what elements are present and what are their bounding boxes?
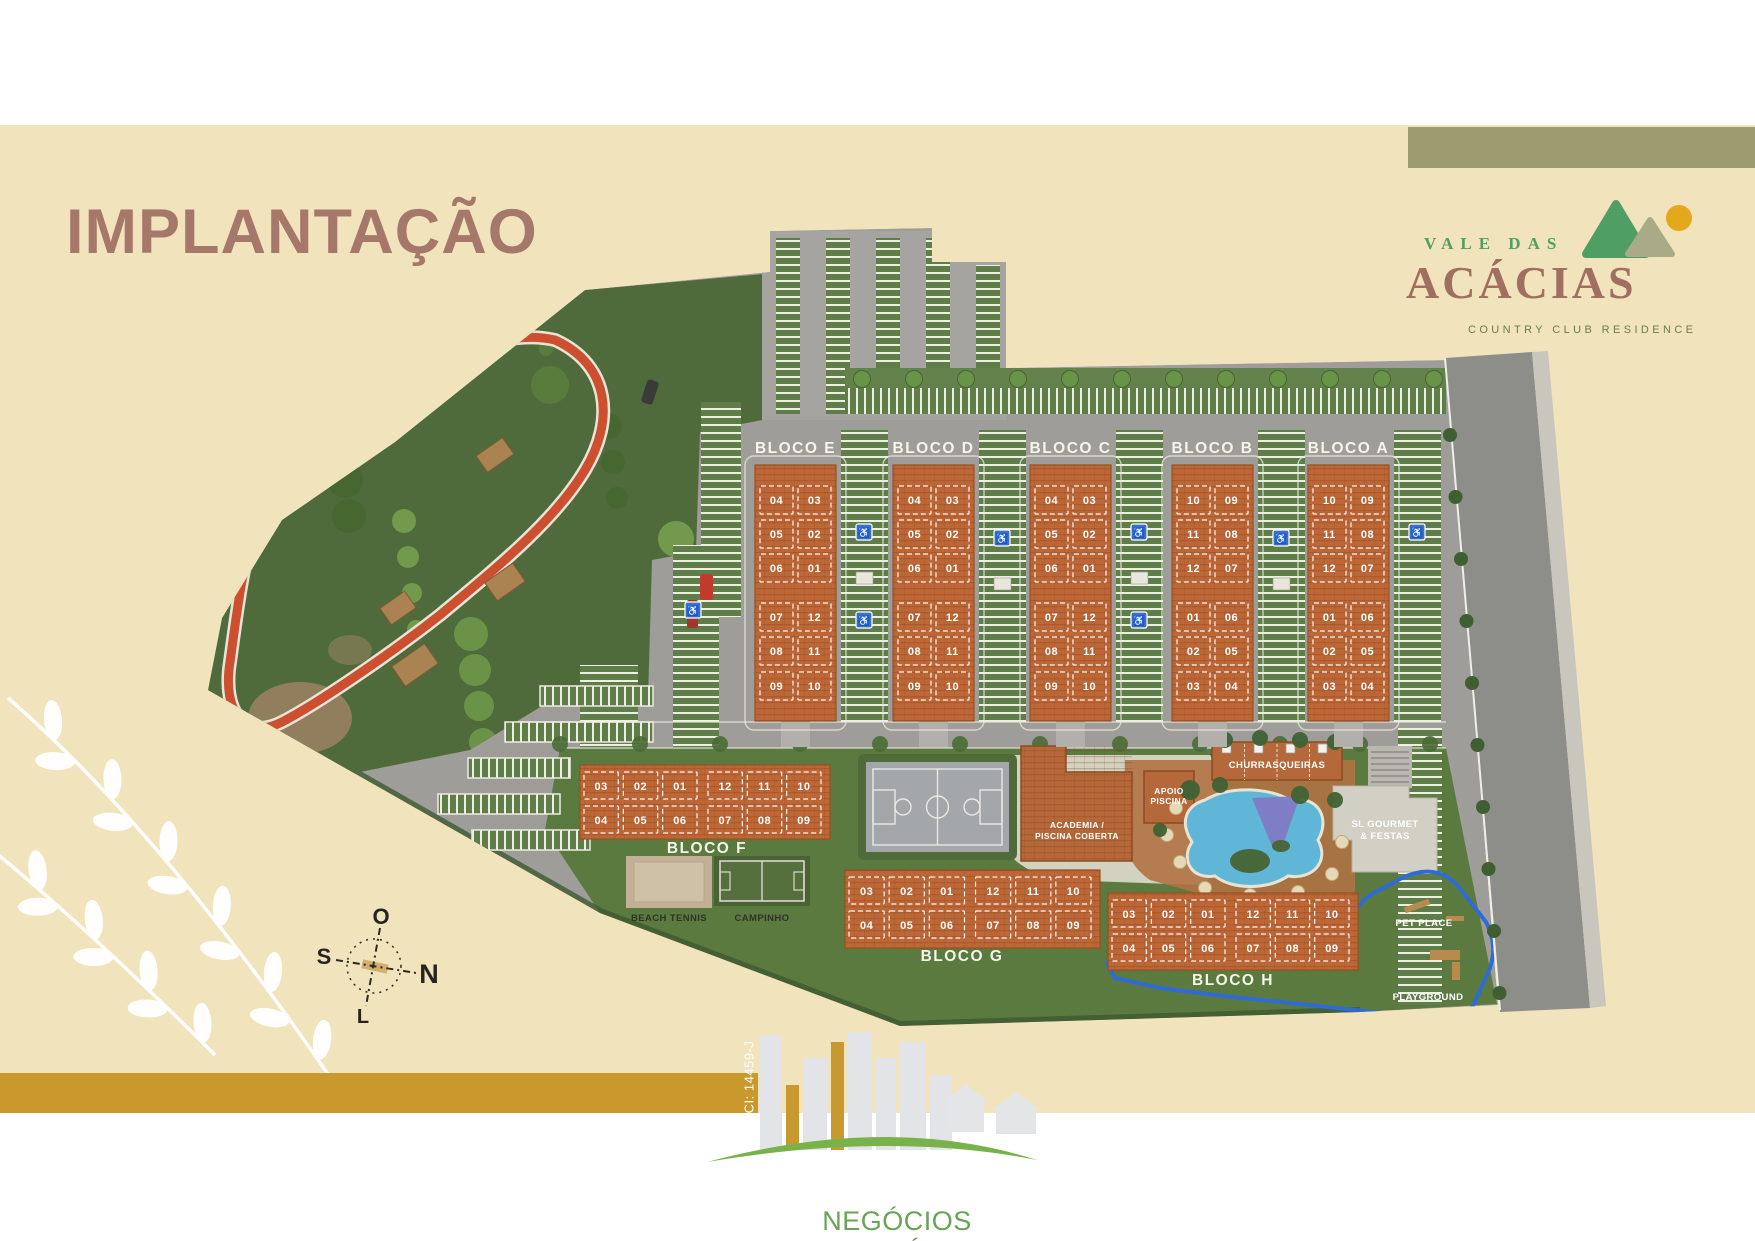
unit-number: 11 <box>1027 886 1040 898</box>
unit-number: 12 <box>1187 563 1200 575</box>
unit-number: 08 <box>908 646 921 658</box>
gym-label: ACADEMIA / <box>1050 820 1104 830</box>
unit-number: 05 <box>1045 529 1058 541</box>
unit-number: 01 <box>1323 612 1336 624</box>
gym-roof-texture <box>1021 746 1132 861</box>
unit-number: 04 <box>1123 943 1137 955</box>
unit-number: 05 <box>770 529 783 541</box>
unit-number: 10 <box>1323 495 1336 507</box>
unit-number: 09 <box>797 815 810 827</box>
unit-number: 03 <box>595 781 608 793</box>
block-C: BLOCO C040305020601071208110910 <box>1020 440 1121 747</box>
unit-number: 03 <box>1323 681 1336 693</box>
page-title: IMPLANTAÇÃO <box>66 196 538 268</box>
unit-number: 01 <box>940 886 953 898</box>
unit-number: 02 <box>946 529 959 541</box>
block-D: BLOCO D040305020601071208110910 <box>883 440 984 747</box>
registration-number: CI: 14459-J <box>742 1041 757 1114</box>
brand-name-top: VALE DAS <box>1424 234 1563 254</box>
svg-text:♿: ♿ <box>1133 614 1145 627</box>
block-label: BLOCO F <box>667 840 747 857</box>
unit-number: 04 <box>1045 495 1059 507</box>
svg-text:♿: ♿ <box>858 526 870 539</box>
unit-number: 08 <box>1361 529 1374 541</box>
unit-number: 04 <box>1361 681 1375 693</box>
slide: ♿♿♿♿♿♿♿♿ <box>0 0 1755 1241</box>
unit-number: 08 <box>1045 646 1058 658</box>
svg-text:♿: ♿ <box>687 604 699 617</box>
unit-number: 08 <box>770 646 783 658</box>
block-E: BLOCO E040305020601071208110910 <box>745 440 846 747</box>
unit-number: 03 <box>946 495 959 507</box>
unit-number: 07 <box>1045 612 1058 624</box>
unit-number: 01 <box>673 781 686 793</box>
parking-north-band <box>845 368 1446 414</box>
pool-island <box>1272 840 1290 852</box>
unit-number: 05 <box>1361 646 1374 658</box>
unit-number: 05 <box>900 920 913 932</box>
unit-number: 11 <box>1323 529 1336 541</box>
block-label: BLOCO G <box>921 948 1004 965</box>
unit-number: 08 <box>1027 920 1040 932</box>
unit-number: 04 <box>1225 681 1239 693</box>
unit-number: 07 <box>986 920 999 932</box>
svg-text:♿: ♿ <box>1411 526 1423 539</box>
unit-number: 02 <box>1083 529 1096 541</box>
bbq-label: CHURRASQUEIRAS <box>1229 760 1325 771</box>
unit-number: 05 <box>1225 646 1238 658</box>
svg-text:♿: ♿ <box>1133 526 1145 539</box>
unit-number: 12 <box>808 612 821 624</box>
unit-number: 08 <box>1286 943 1299 955</box>
unit-number: 06 <box>908 563 921 575</box>
block-label: BLOCO E <box>755 440 836 457</box>
unit-number: 12 <box>946 612 959 624</box>
unit-number: 06 <box>1201 943 1214 955</box>
unit-number: 02 <box>634 781 647 793</box>
gourmet-label: SL GOURMET <box>1351 819 1418 830</box>
compass-rose: O S N L <box>317 904 439 1028</box>
unit-number: 03 <box>1123 909 1136 921</box>
unit-number: 06 <box>1045 563 1058 575</box>
unit-number: 07 <box>770 612 783 624</box>
unit-number: 01 <box>808 563 821 575</box>
compass-south: S <box>317 944 332 969</box>
unit-number: 11 <box>1083 646 1096 658</box>
unit-number: 10 <box>808 681 821 693</box>
unit-number: 12 <box>1323 563 1336 575</box>
svg-text:♿: ♿ <box>996 532 1008 545</box>
unit-number: 12 <box>986 886 999 898</box>
unit-number: 02 <box>1162 909 1175 921</box>
pool-island <box>1230 849 1270 873</box>
unit-number: 09 <box>1361 495 1374 507</box>
unit-number: 01 <box>1083 563 1096 575</box>
unit-number: 04 <box>908 495 922 507</box>
compass-east: L <box>357 1006 369 1028</box>
unit-number: 09 <box>1045 681 1058 693</box>
unit-number: 06 <box>673 815 686 827</box>
unit-number: 02 <box>900 886 913 898</box>
unit-number: 10 <box>1067 886 1080 898</box>
compass-north: N <box>419 959 439 989</box>
brand-tagline: COUNTRY CLUB RESIDENCE <box>1468 324 1696 336</box>
pool-support-label-2: PISCINA <box>1150 796 1187 806</box>
unit-number: 01 <box>946 563 959 575</box>
dirt-patch <box>328 635 372 665</box>
unit-number: 09 <box>1225 495 1238 507</box>
sun-icon <box>1666 205 1692 231</box>
svg-text:♿: ♿ <box>1275 532 1287 545</box>
unit-number: 12 <box>719 781 732 793</box>
sports-court <box>858 754 1017 860</box>
playground-label: PLAYGROUND <box>1393 992 1464 1003</box>
block-B: BLOCO B100911081207010602050304 <box>1162 440 1263 747</box>
unit-number: 07 <box>719 815 732 827</box>
unit-number: 07 <box>1247 943 1260 955</box>
campinho-label: CAMPINHO <box>735 913 790 924</box>
unit-number: 11 <box>1286 909 1299 921</box>
unit-number: 10 <box>1083 681 1096 693</box>
mini-soccer-field <box>714 856 810 906</box>
unit-number: 08 <box>1225 529 1238 541</box>
unit-number: 09 <box>908 681 921 693</box>
unit-number: 02 <box>1323 646 1336 658</box>
unit-number: 06 <box>770 563 783 575</box>
footer-gold-band <box>0 1073 758 1113</box>
beach-tennis-court <box>626 856 712 908</box>
unit-number: 09 <box>1067 920 1080 932</box>
unit-number: 06 <box>1361 612 1374 624</box>
unit-number: 08 <box>758 815 771 827</box>
unit-number: 07 <box>908 612 921 624</box>
unit-number: 02 <box>1187 646 1200 658</box>
footer-tagline: NEGÓCIOS IMOBILIÁRIOS <box>756 1206 1038 1241</box>
unit-number: 12 <box>1083 612 1096 624</box>
unit-number: 01 <box>1201 909 1214 921</box>
unit-number: 03 <box>808 495 821 507</box>
block-label: BLOCO A <box>1308 440 1389 457</box>
unit-number: 03 <box>1187 681 1200 693</box>
gourmet-label-2: & FESTAS <box>1360 831 1409 842</box>
unit-number: 10 <box>1187 495 1200 507</box>
unit-number: 02 <box>808 529 821 541</box>
unit-number: 04 <box>770 495 784 507</box>
brand-name-main: ACÁCIAS <box>1406 256 1637 309</box>
unit-number: 10 <box>946 681 959 693</box>
unit-number: 05 <box>634 815 647 827</box>
site-plan: ♿♿♿♿♿♿♿♿ <box>0 0 1755 1241</box>
unit-number: 10 <box>797 781 810 793</box>
unit-number: 07 <box>1225 563 1238 575</box>
svg-text:♿: ♿ <box>858 614 870 627</box>
unit-number: 03 <box>1083 495 1096 507</box>
block-label: BLOCO H <box>1192 972 1274 989</box>
unit-number: 05 <box>908 529 921 541</box>
brand-logo: VALE DAS ACÁCIAS COUNTRY CLUB RESIDENCE <box>1380 190 1720 350</box>
header-accent-band <box>1408 127 1755 168</box>
brand-mark-icon <box>1576 190 1706 262</box>
unit-number: 09 <box>1325 943 1338 955</box>
swimming-pool <box>1185 790 1323 887</box>
unit-number: 03 <box>860 886 873 898</box>
unit-number: 10 <box>1325 909 1338 921</box>
unit-number: 11 <box>758 781 771 793</box>
unit-number: 11 <box>1187 529 1200 541</box>
unit-number: 04 <box>860 920 874 932</box>
unit-number: 11 <box>808 646 821 658</box>
beach-tennis-label: BEACH TENNIS <box>631 913 707 924</box>
gym-label-2: PISCINA COBERTA <box>1035 831 1119 841</box>
unit-number: 04 <box>595 815 609 827</box>
block-label: BLOCO B <box>1172 440 1254 457</box>
parked-car-red <box>700 574 713 600</box>
block-label: BLOCO C <box>1030 440 1112 457</box>
unit-number: 05 <box>1162 943 1175 955</box>
block-A: BLOCO A100911081207010602050304 <box>1298 440 1399 747</box>
unit-number: 06 <box>940 920 953 932</box>
leaf-decoration <box>0 698 333 1080</box>
unit-number: 12 <box>1247 909 1260 921</box>
compass-west: O <box>372 904 389 929</box>
unit-number: 09 <box>770 681 783 693</box>
unit-number: 06 <box>1225 612 1238 624</box>
pool-support-label: APOIO <box>1154 786 1183 796</box>
unit-number: 11 <box>946 646 959 658</box>
block-label: BLOCO D <box>893 440 975 457</box>
pet-place-label: PET PLACE <box>1396 918 1453 929</box>
unit-number: 07 <box>1361 563 1374 575</box>
unit-number: 01 <box>1187 612 1200 624</box>
